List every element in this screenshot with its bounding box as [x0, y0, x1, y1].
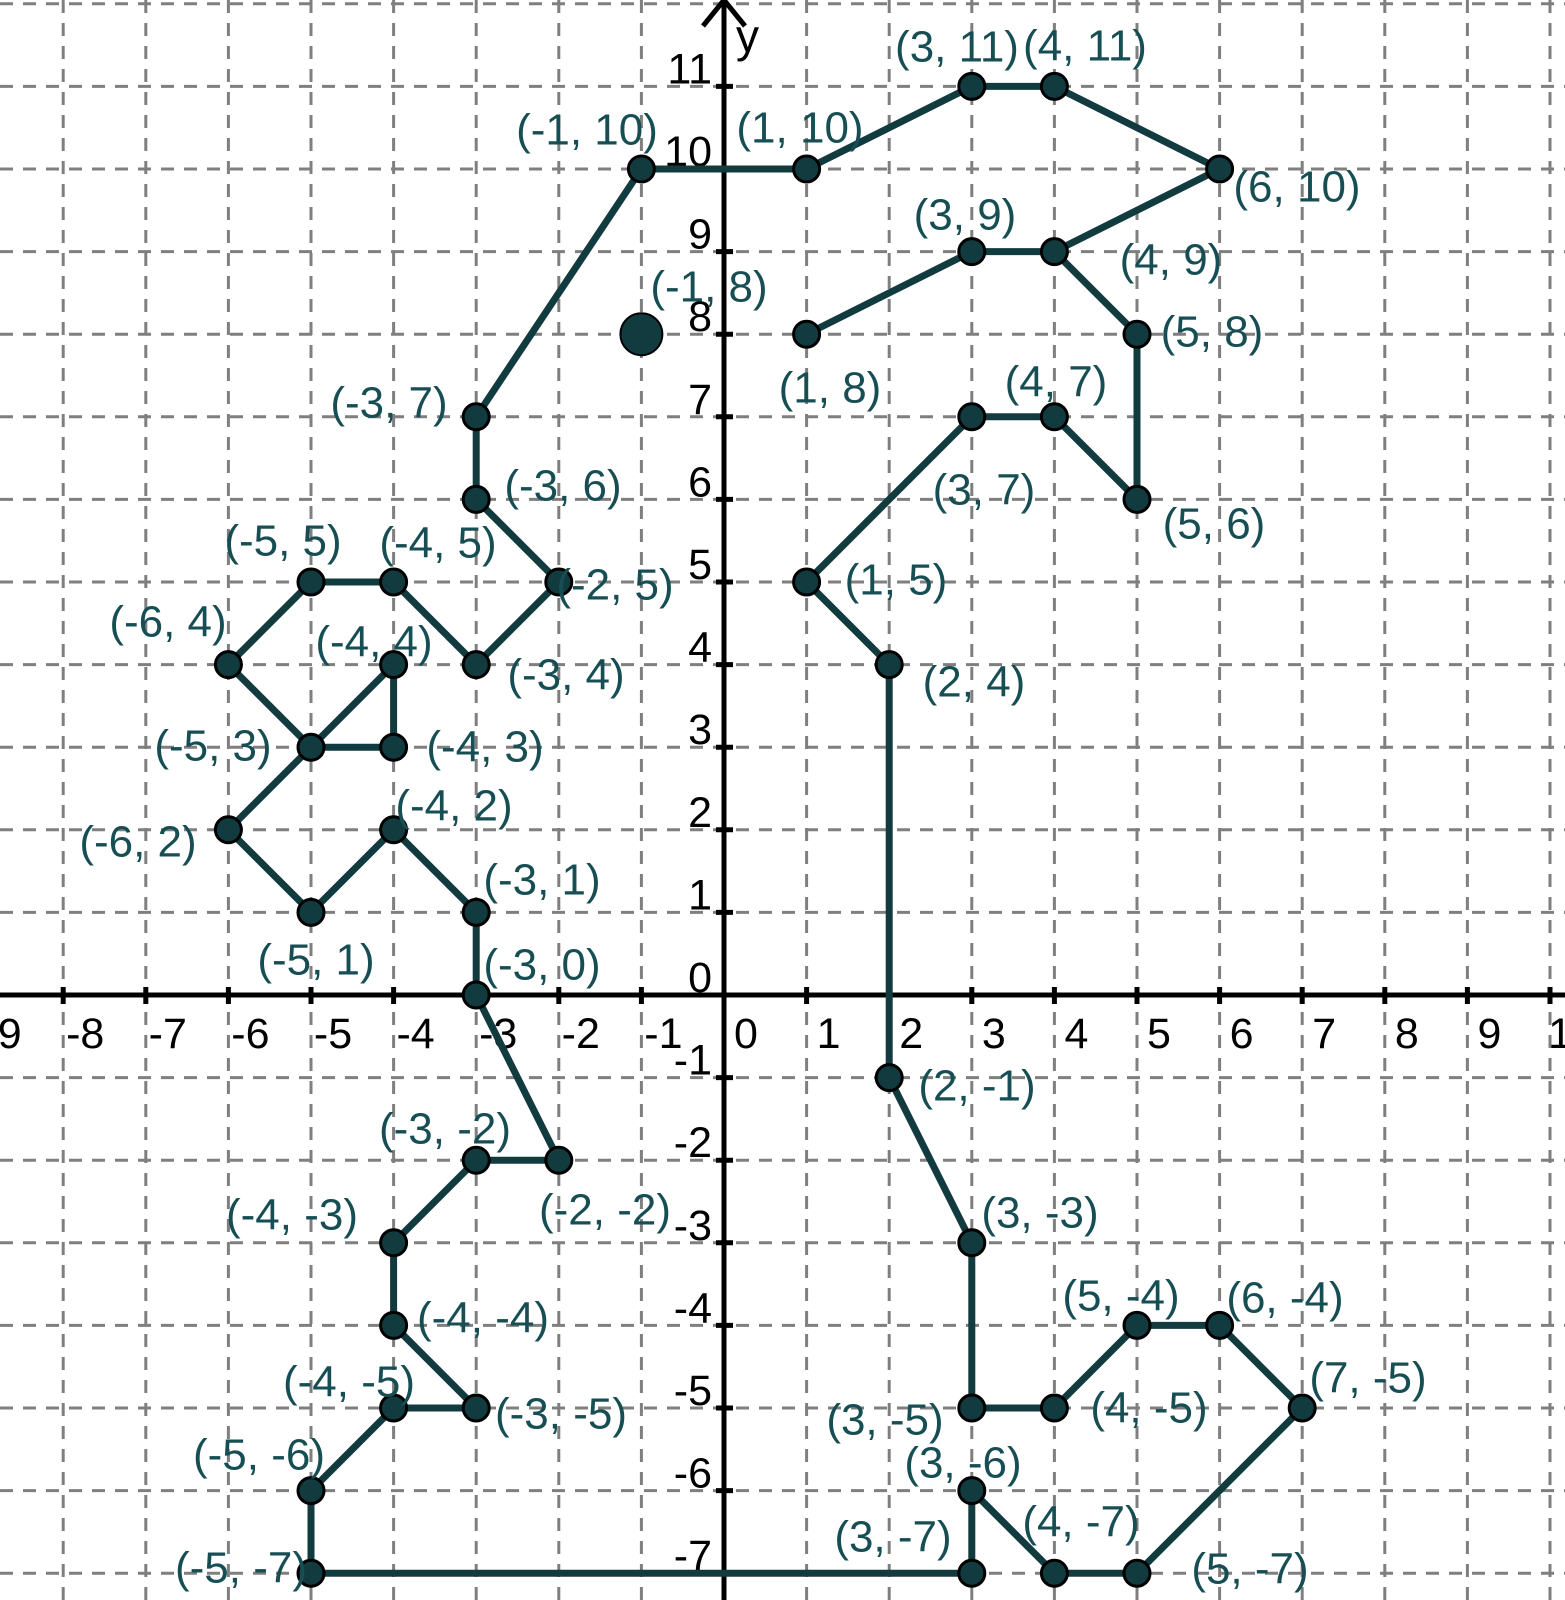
data-point: [628, 156, 654, 182]
y-axis-tick-label: 5: [688, 541, 712, 589]
coordinate-plane-figure: -9-8-7-6-5-4-3-2-1012345678910-7-6-5-4-3…: [0, 0, 1565, 1600]
point-label: (-4, 4): [315, 618, 432, 667]
data-point: [298, 899, 324, 925]
data-point: [1041, 404, 1067, 430]
y-axis-tick-label: 4: [688, 624, 712, 672]
point-label: (-5, -6): [193, 1431, 325, 1480]
point-label: (-3, -2): [379, 1105, 511, 1154]
data-point: [298, 1478, 324, 1504]
point-label: (6, -4): [1226, 1274, 1343, 1323]
x-axis-tick-label: 7: [1312, 1010, 1336, 1058]
data-point: [463, 404, 489, 430]
point-label: (4, 9): [1120, 236, 1223, 285]
x-axis-tick-label: -4: [396, 1010, 434, 1058]
point-label: (3, 9): [914, 191, 1017, 240]
y-axis-tick-label: -3: [674, 1202, 712, 1250]
outline-segment: [311, 830, 394, 913]
data-point: [298, 569, 324, 595]
data-point: [546, 1147, 572, 1173]
y-axis-tick-label: -6: [674, 1450, 712, 1498]
point-label: (1, 5): [845, 556, 948, 605]
point-label: (3, -5): [826, 1396, 943, 1445]
data-point: [959, 73, 985, 99]
data-point: [1124, 1560, 1150, 1586]
point-label: (-4, -5): [283, 1358, 415, 1407]
y-axis-tick-label: 1: [688, 871, 712, 919]
point-label: (-1, 10): [516, 106, 658, 155]
coordinate-plane: -9-8-7-6-5-4-3-2-1012345678910-7-6-5-4-3…: [0, 0, 1565, 1600]
point-label: (-2, 5): [556, 561, 673, 610]
data-point: [381, 1312, 407, 1338]
data-point: [463, 1395, 489, 1421]
point-label: (1, 10): [736, 104, 863, 153]
x-axis-tick-label: -8: [66, 1010, 104, 1058]
x-axis-tick-label: -2: [562, 1010, 600, 1058]
point-label: (-4, -3): [226, 1191, 358, 1240]
data-point: [876, 652, 902, 678]
data-point: [1041, 1395, 1067, 1421]
y-axis-tick-label: 9: [688, 211, 712, 259]
x-axis-tick-label: -9: [0, 1010, 22, 1058]
point-label: (4, -7): [1022, 1498, 1139, 1547]
y-axis-tick-label: 3: [688, 706, 712, 754]
point-label: (5, -7): [1191, 1545, 1308, 1594]
data-point: [959, 239, 985, 265]
data-point: [959, 404, 985, 430]
point-label: (-6, 2): [79, 818, 196, 867]
data-point: [1207, 156, 1233, 182]
y-axis-tick-label: 6: [688, 458, 712, 506]
outline-segment: [394, 830, 477, 913]
point-label: (6, 10): [1233, 163, 1360, 212]
data-point: [381, 569, 407, 595]
point-label: (-4, 2): [395, 782, 512, 831]
data-point: [1041, 1560, 1067, 1586]
point-label: (-5, 5): [224, 517, 341, 566]
point-label: (3, 11): [895, 23, 1019, 72]
point-label: (-3, 6): [504, 462, 621, 511]
x-axis-tick-label: -6: [231, 1010, 269, 1058]
y-axis-tick-label: 2: [688, 789, 712, 837]
x-axis-tick-label: 0: [734, 1010, 758, 1058]
data-point: [298, 734, 324, 760]
x-axis-tick-label: 3: [982, 1010, 1006, 1058]
y-axis-title: y: [736, 10, 759, 62]
point-label: (2, -1): [918, 1062, 1035, 1111]
x-axis-tick-label: 1: [817, 1010, 841, 1058]
point-label: (-2, -2): [539, 1186, 671, 1235]
y-axis-tick-label: 7: [688, 376, 712, 424]
point-label: (1, 8): [779, 364, 882, 413]
point-label: (-4, -4): [417, 1294, 549, 1343]
point-label: (5, 8): [1161, 308, 1264, 357]
point-label: (-5, 3): [154, 722, 271, 771]
point-label: (-4, 5): [379, 519, 496, 568]
labels-layer: (-1, 10)(1, 10)(3, 11)(4, 11)(6, 10)(3, …: [79, 22, 1426, 1594]
eye-point: [620, 313, 662, 355]
point-label: (-3, 1): [483, 856, 600, 905]
y-axis-tick-label: -4: [674, 1284, 712, 1332]
data-point: [381, 1230, 407, 1256]
data-point: [959, 1560, 985, 1586]
point-label: (3, -7): [834, 1513, 951, 1562]
outline-segment: [1220, 1325, 1303, 1408]
point-label: (-6, 4): [109, 598, 226, 647]
x-axis-tick-label: 6: [1230, 1010, 1254, 1058]
x-axis-tick-label: 9: [1477, 1010, 1501, 1058]
data-point: [381, 734, 407, 760]
point-label: (2, 4): [923, 658, 1026, 707]
x-axis-tick-label: 8: [1395, 1010, 1419, 1058]
point-label: (4, 7): [1005, 358, 1108, 407]
point-label: (3, -3): [981, 1189, 1098, 1238]
point-label: (5, -4): [1062, 1272, 1179, 1321]
x-axis-tick-label: 2: [899, 1010, 923, 1058]
outline-segment: [394, 1160, 477, 1243]
point-label: (-3, 4): [507, 651, 624, 700]
point-label: (4, 11): [1023, 22, 1147, 71]
x-axis-tick-label: 5: [1147, 1010, 1171, 1058]
data-point: [794, 156, 820, 182]
point-label: (-5, -7): [175, 1544, 307, 1593]
outline-segment: [1054, 417, 1137, 500]
y-axis-tick-label: 11: [667, 45, 712, 93]
data-point: [794, 569, 820, 595]
point-label: (-3, 0): [483, 941, 600, 990]
data-point: [1124, 321, 1150, 347]
data-point: [463, 652, 489, 678]
point-label: (5, 6): [1163, 500, 1266, 549]
x-axis-tick-label: 10: [1548, 1010, 1565, 1058]
point-label: (3, 7): [933, 466, 1036, 515]
data-point: [215, 652, 241, 678]
data-point: [959, 1395, 985, 1421]
point-label: (-5, 1): [257, 936, 374, 985]
outline-segment: [228, 830, 311, 913]
point-label: (7, -5): [1309, 1354, 1426, 1403]
y-axis-tick-label: -2: [674, 1119, 712, 1167]
data-point: [1041, 239, 1067, 265]
point-label: (-3, 7): [330, 379, 447, 428]
data-point: [1124, 486, 1150, 512]
point-label: (-3, -5): [495, 1390, 627, 1439]
outline-segment: [228, 582, 311, 665]
data-point: [876, 1065, 902, 1091]
x-axis-tick-label: -7: [149, 1010, 187, 1058]
point-label: (-4, 3): [426, 723, 543, 772]
data-point: [463, 486, 489, 512]
x-axis-tick-label: 4: [1064, 1010, 1088, 1058]
y-axis-tick-label: -1: [674, 1037, 712, 1085]
data-point: [794, 321, 820, 347]
y-axis-tick-label: -5: [674, 1367, 712, 1415]
data-point: [215, 817, 241, 843]
point-label: (-1, 8): [650, 263, 767, 312]
y-axis-tick-label: 0: [688, 954, 712, 1002]
data-point: [1041, 73, 1067, 99]
point-label: (3, -6): [904, 1439, 1021, 1488]
point-label: (4, -5): [1090, 1384, 1207, 1433]
outline-segment: [311, 665, 394, 748]
x-axis-tick-label: -5: [314, 1010, 352, 1058]
